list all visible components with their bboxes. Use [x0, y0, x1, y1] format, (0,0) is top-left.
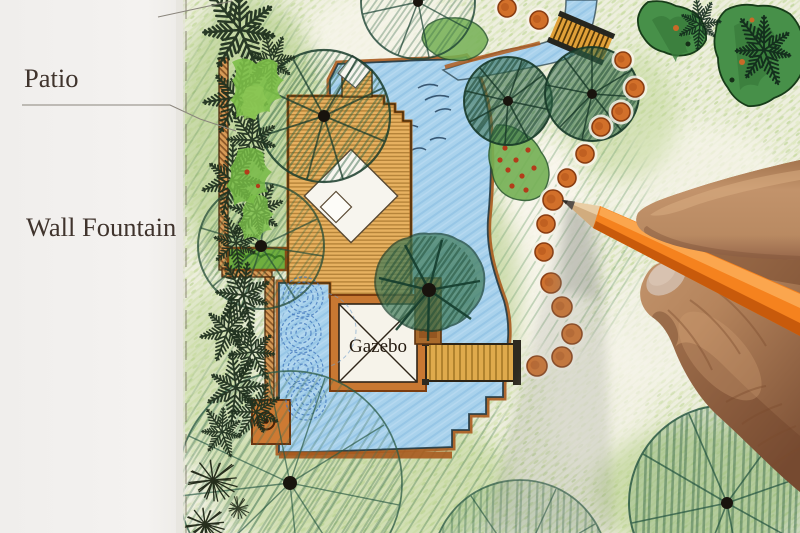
svg-text:Patio: Patio [24, 63, 78, 93]
svg-text:Gazebo: Gazebo [349, 336, 407, 357]
svg-text:Wall Fountain: Wall Fountain [26, 212, 176, 242]
